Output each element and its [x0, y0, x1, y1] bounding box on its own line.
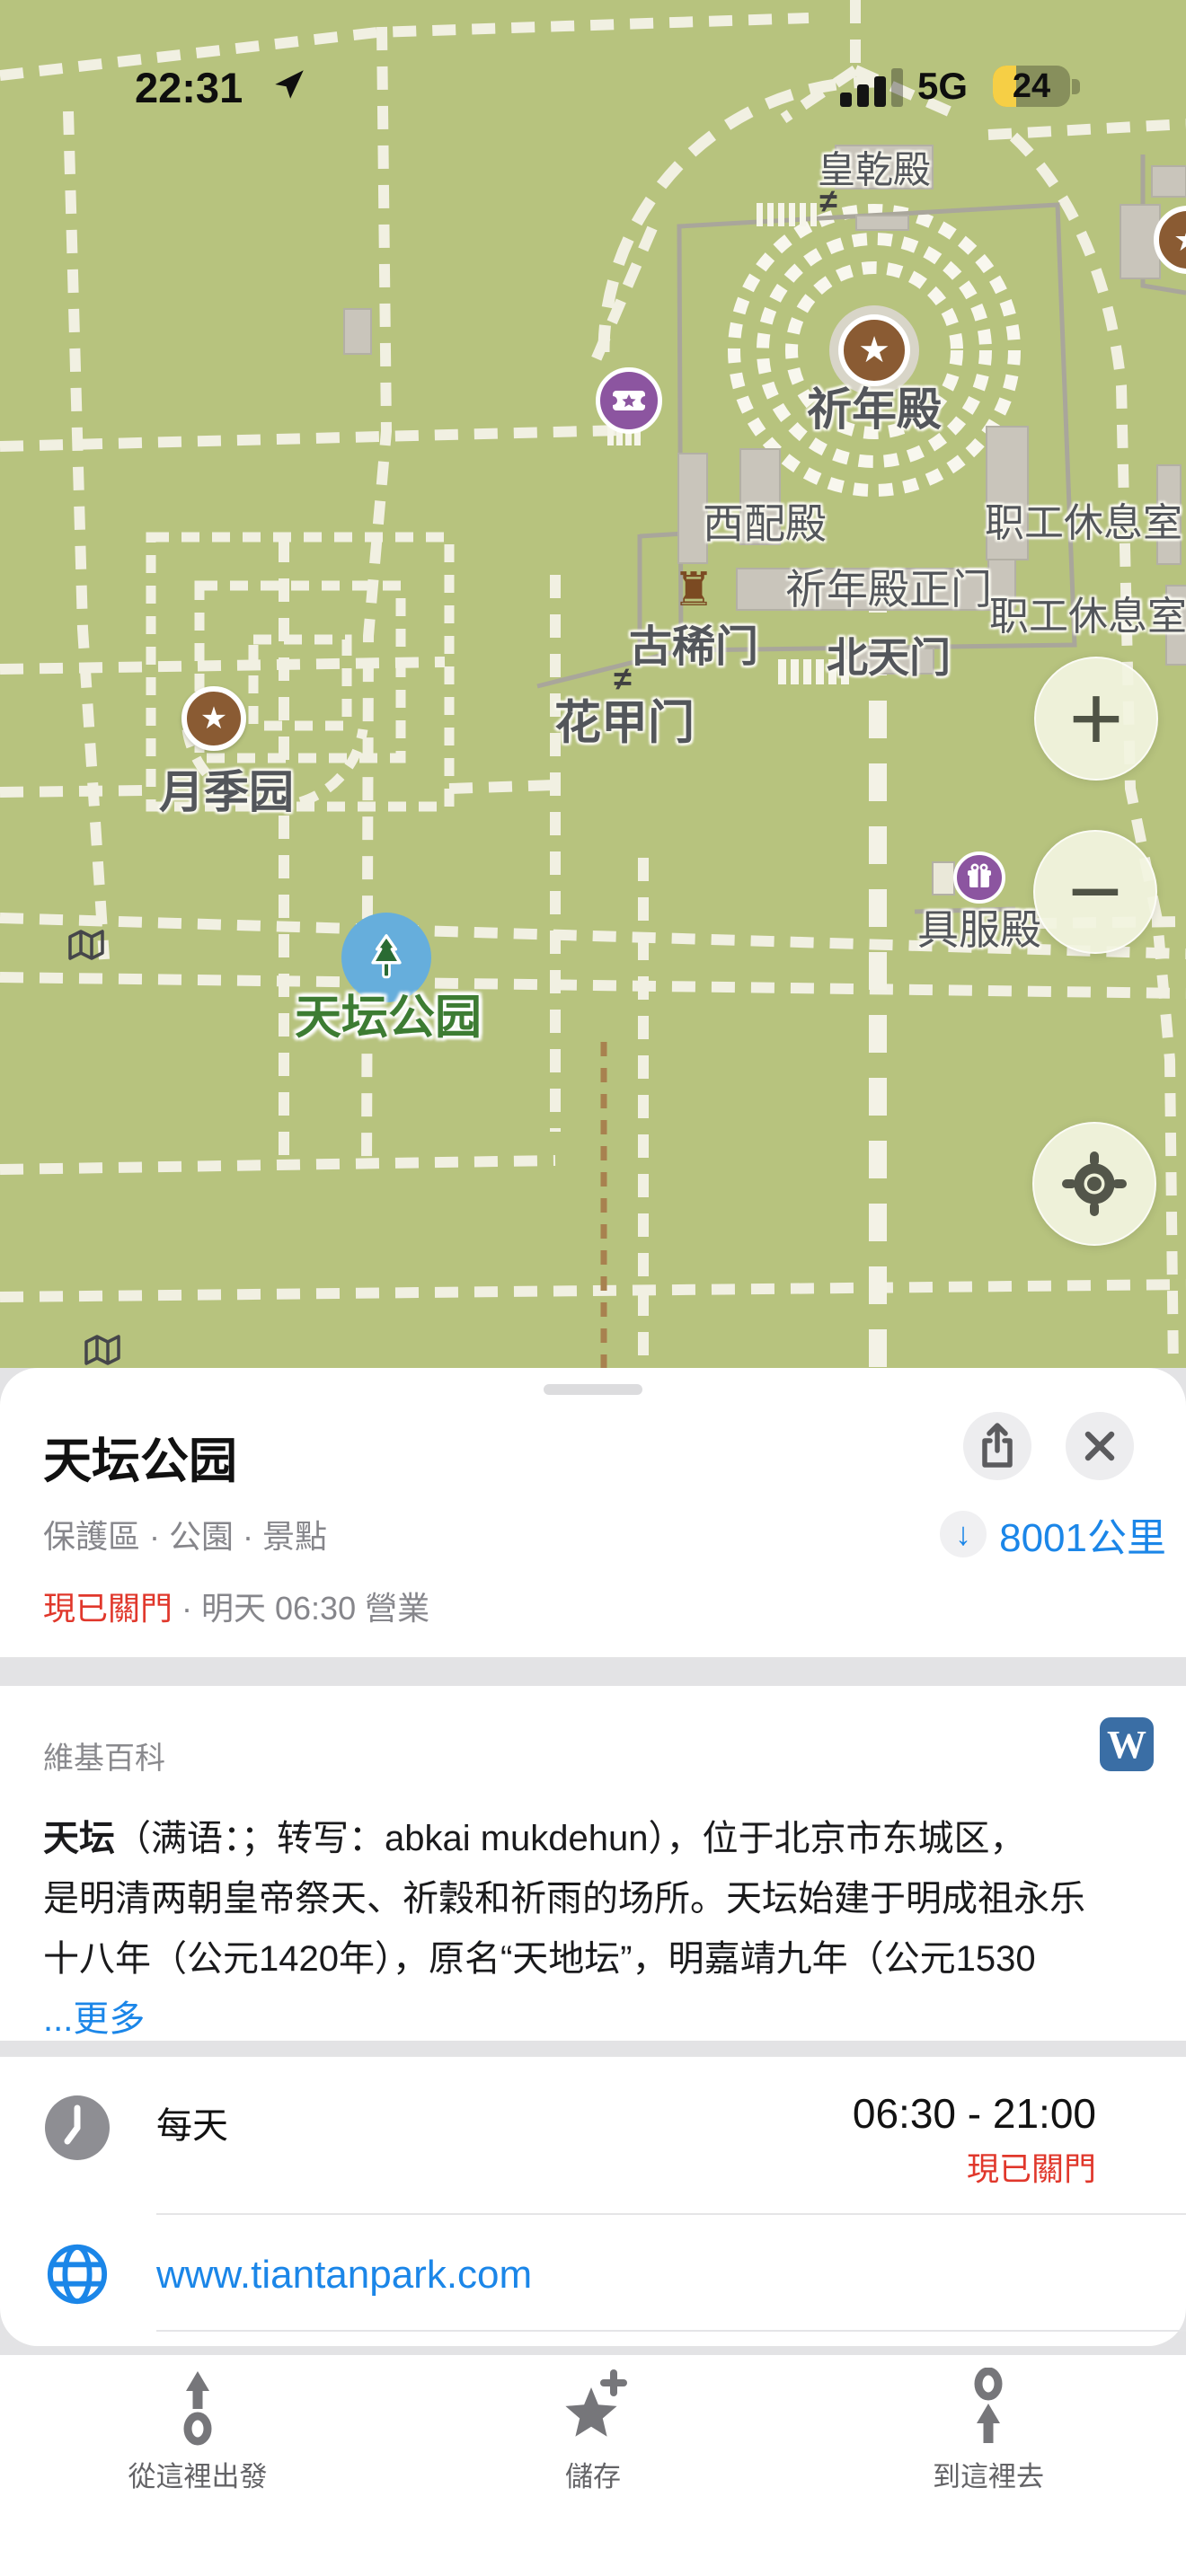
network-type: 5G	[917, 65, 968, 108]
battery-icon: 24	[993, 66, 1070, 107]
clock-time: 22:31	[135, 63, 243, 112]
row-divider	[156, 2330, 1186, 2332]
close-icon	[1084, 1430, 1116, 1462]
wiki-line-1-text: （满语：；转写：abkai mukdehun），位于北京市东城区，	[115, 1819, 1026, 1858]
map-label-jufudian: 具服殿	[917, 897, 1041, 957]
wiki-line-1: 天坛（满语：；转写：abkai mukdehun），位于北京市东城区，	[43, 1809, 1157, 1869]
hours-time-range: 06:30 - 21:00	[853, 2089, 1096, 2138]
map-label-guximen: 古稀门	[629, 611, 758, 674]
sheet-drag-handle[interactable]	[544, 1384, 642, 1395]
action-tab-bar: 從這裡出發 儲存 到這裡去	[0, 2355, 1186, 2576]
gift-icon	[965, 863, 994, 892]
hours-day-label: 每天	[156, 2096, 228, 2148]
direction-arrow-icon: ↓	[940, 1511, 987, 1557]
battery-percent: 24	[993, 66, 1070, 107]
clock-icon	[45, 2095, 110, 2160]
wiki-line-3: 十八年（公元1420年），原名“天地坛”，明嘉靖九年（公元1530	[43, 1929, 1157, 1989]
map-label-xipeidian: 西配殿	[703, 491, 827, 551]
wiki-line-2: 是明清两朝皇帝祭天、祈穀和祈雨的场所。天坛始建于明成祖永乐	[43, 1869, 1157, 1929]
tab-directions-to-here[interactable]: 到這裡去	[791, 2355, 1186, 2576]
map-label-beitianmen: 北天门	[827, 625, 951, 684]
save-star-icon	[557, 2368, 629, 2447]
status-bar: 22:31 5G 24	[0, 0, 1186, 126]
tab-directions-from-here[interactable]: 從這裡出發	[0, 2355, 395, 2576]
route-from-icon	[162, 2368, 234, 2447]
iphone-screen: ≠ ≠ ♜ ★ ★ ★	[0, 0, 1186, 2576]
location-arrow-icon	[273, 68, 305, 101]
tree-icon	[366, 932, 407, 983]
map-fold-icon	[67, 928, 105, 964]
tower-icon: ♜	[673, 563, 715, 617]
distance-value: 8001公里	[999, 1505, 1166, 1563]
minus-icon: −	[1068, 845, 1123, 939]
map-label-huajiamen: 花甲门	[554, 685, 695, 753]
tab-label: 到這裡去	[933, 2454, 1044, 2494]
wikipedia-header: 維基百科	[43, 1734, 165, 1778]
place-title: 天坛公园	[43, 1421, 237, 1492]
distance-row[interactable]: ↓ 8001公里	[940, 1505, 1166, 1563]
map-label-qiniandian: 祈年殿	[807, 374, 942, 438]
battery-nub	[1072, 79, 1080, 94]
map-label-staff-lounge-2: 职工休息室	[989, 584, 1186, 641]
open-status-row: 現已關門 · 明天 06:30 營業	[43, 1583, 429, 1629]
poi-ticket-office[interactable]	[596, 367, 662, 434]
tab-label: 從這裡出發	[128, 2454, 268, 2494]
poi-rose-garden-star[interactable]: ★	[181, 686, 246, 751]
share-icon	[978, 1423, 1017, 1469]
star-icon: ★	[858, 330, 890, 371]
more-link[interactable]: ...更多	[43, 1989, 1157, 2050]
locate-me-button[interactable]	[1032, 1122, 1156, 1246]
row-divider	[156, 2213, 1186, 2215]
map-fold-icon	[84, 1333, 121, 1369]
close-button[interactable]	[1066, 1412, 1134, 1480]
route-to-icon	[952, 2368, 1024, 2447]
closed-status: 現已關門	[43, 1590, 173, 1627]
globe-icon	[45, 2242, 110, 2307]
plus-icon: +	[1069, 672, 1124, 765]
map-label-huangqiandian: 皇乾殿	[818, 140, 931, 195]
crosshair-icon	[1059, 1149, 1129, 1219]
cellular-signal-icon	[840, 67, 903, 107]
share-button[interactable]	[963, 1412, 1031, 1480]
place-categories: 保護區 · 公園 · 景點	[43, 1511, 327, 1557]
map-label-tiantan-park: 天坛公园	[295, 980, 482, 1047]
tab-save[interactable]: 儲存	[395, 2355, 791, 2576]
map-label-staff-lounge-1: 职工休息室	[985, 490, 1182, 548]
map-canvas[interactable]: ≠ ≠ ♜ ★ ★ ★	[0, 0, 1186, 1401]
wikipedia-icon[interactable]: W	[1100, 1717, 1154, 1771]
next-open-time: · 明天 06:30 營業	[173, 1590, 429, 1627]
star-icon: ★	[200, 701, 227, 737]
zoom-out-button[interactable]: −	[1033, 830, 1157, 954]
website-link[interactable]: www.tiantanpark.com	[156, 2253, 532, 2298]
poi-gift-shop[interactable]	[953, 851, 1005, 904]
zoom-in-button[interactable]: +	[1034, 657, 1158, 781]
hours-closed-status: 現已關門	[967, 2143, 1096, 2190]
star-icon: ★	[1173, 221, 1186, 259]
map-label-rose-garden: 月季园	[159, 756, 294, 821]
wikipedia-excerpt: 天坛（满语：；转写：abkai mukdehun），位于北京市东城区， 是明清两…	[43, 1809, 1157, 2050]
wiki-lead: 天坛	[43, 1819, 115, 1858]
ticket-icon	[611, 387, 647, 414]
map-label-qiniandian-main-gate: 祈年殿正门	[785, 557, 992, 616]
tab-label: 儲存	[565, 2454, 621, 2494]
